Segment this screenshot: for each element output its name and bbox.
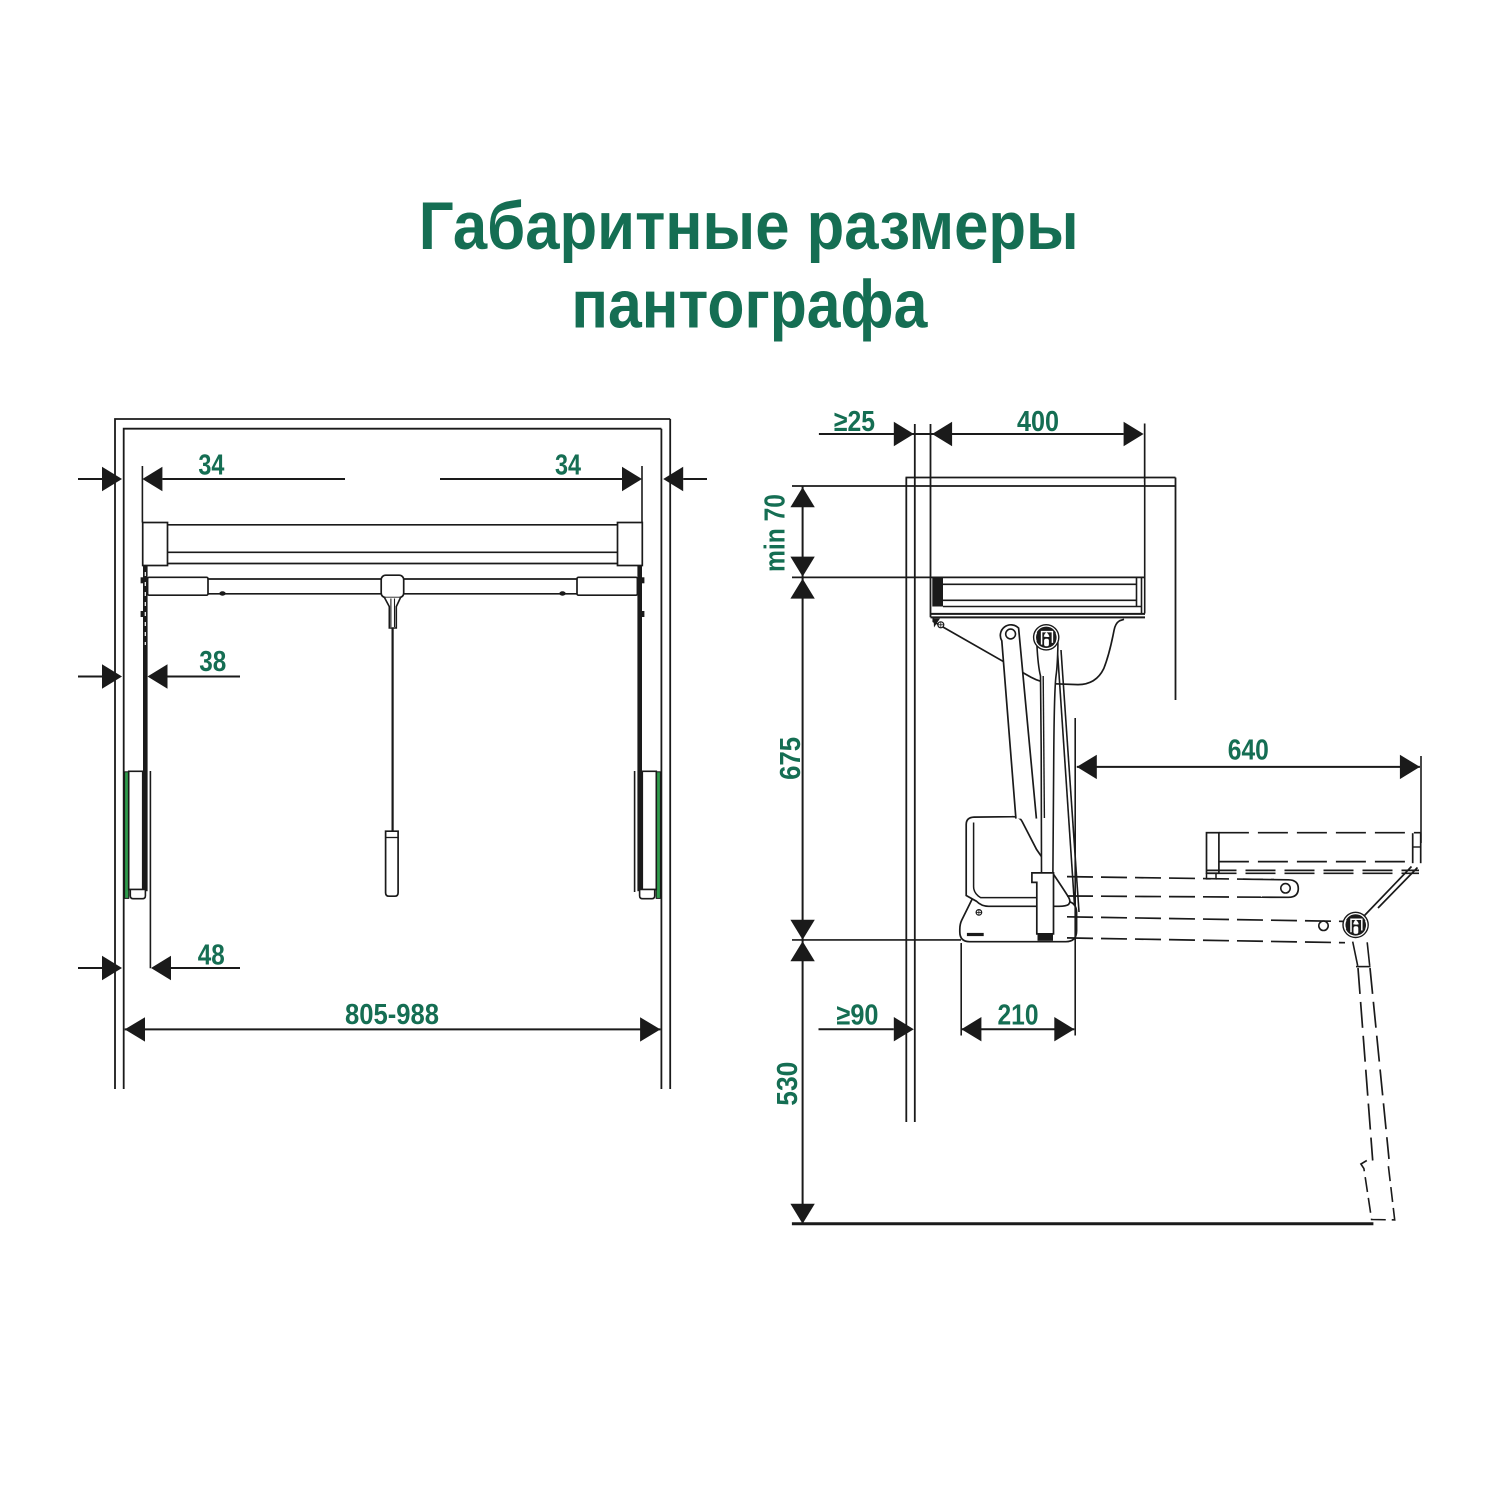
svg-text:Габаритные размеры: Габаритные размеры <box>419 188 1079 264</box>
svg-text:34: 34 <box>198 449 224 481</box>
svg-text:≥90: ≥90 <box>837 999 879 1031</box>
svg-text:210: 210 <box>998 999 1039 1031</box>
svg-text:675: 675 <box>775 737 807 780</box>
svg-text:пантографа: пантографа <box>571 267 928 343</box>
svg-text:min 70: min 70 <box>760 494 792 572</box>
svg-text:640: 640 <box>1228 735 1269 767</box>
svg-text:34: 34 <box>555 449 581 481</box>
svg-text:≥25: ≥25 <box>834 406 875 438</box>
svg-text:530: 530 <box>772 1062 804 1106</box>
svg-text:38: 38 <box>199 646 226 678</box>
svg-text:400: 400 <box>1017 406 1059 438</box>
svg-text:48: 48 <box>198 940 225 972</box>
svg-text:805-988: 805-988 <box>345 999 439 1031</box>
